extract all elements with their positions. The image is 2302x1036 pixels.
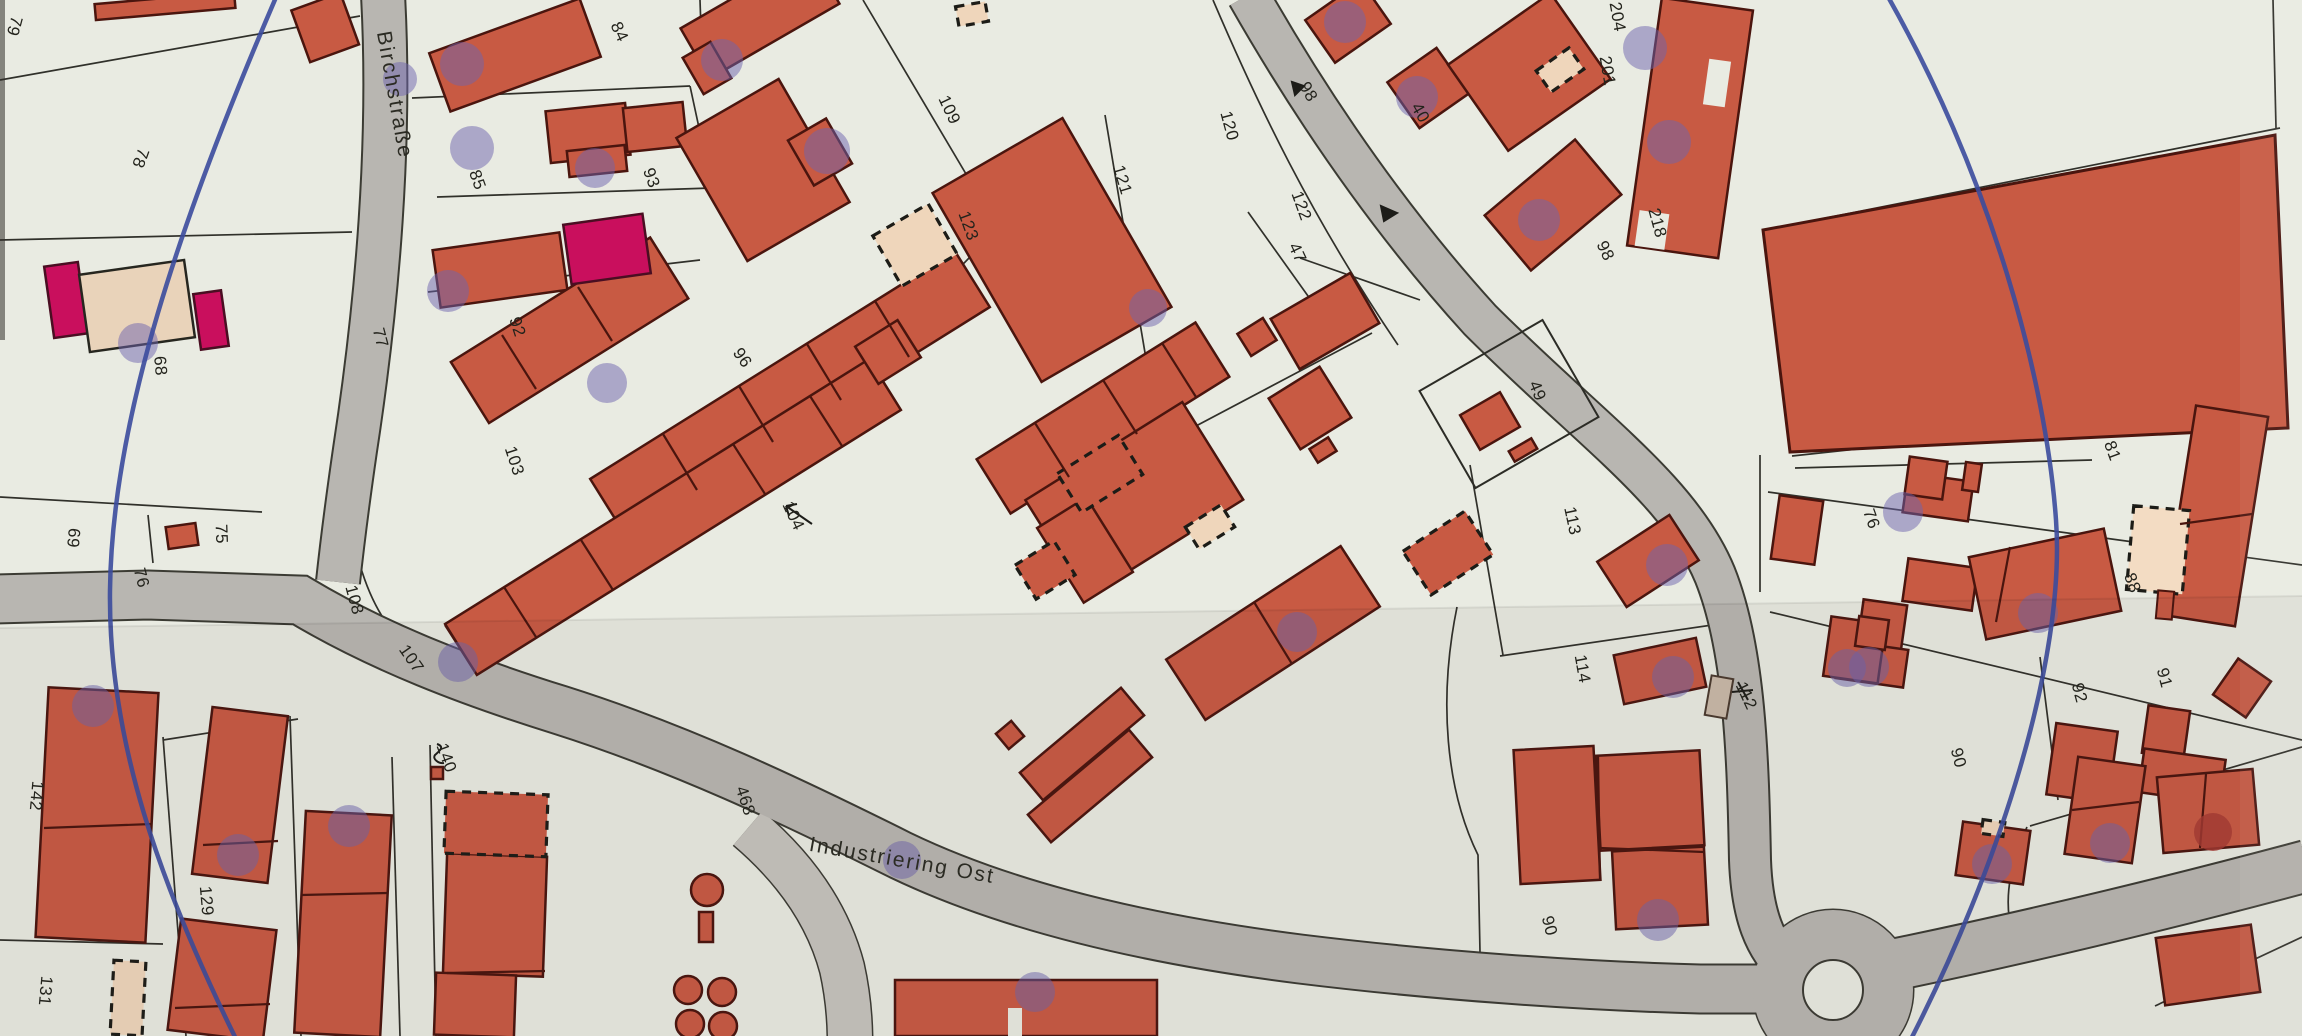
parcel-label-131: 131 bbox=[34, 975, 57, 1007]
building bbox=[1448, 0, 1611, 151]
marker-dot bbox=[1647, 120, 1691, 164]
building bbox=[1905, 457, 1948, 500]
fold-shadow bbox=[0, 596, 2302, 1036]
building bbox=[95, 0, 236, 20]
building bbox=[166, 523, 199, 549]
parcel-label-142: 142 bbox=[25, 780, 48, 812]
road-birchstrasse bbox=[338, 0, 385, 582]
marker-dot bbox=[1883, 492, 1923, 532]
marker-dot bbox=[1324, 1, 1366, 43]
marker-dot bbox=[804, 128, 850, 174]
marker-dot bbox=[1518, 199, 1560, 241]
scan-edge bbox=[0, 0, 5, 340]
marker-dot bbox=[1129, 289, 1167, 327]
marker-dot bbox=[1646, 544, 1688, 586]
map-scan: 79 78 84 85 93 92 77 68 109 123 121 120 … bbox=[0, 0, 2302, 1036]
marker-dot bbox=[427, 270, 469, 312]
building bbox=[1460, 392, 1520, 450]
building bbox=[1271, 273, 1380, 369]
marker-dot bbox=[701, 39, 743, 81]
building bbox=[955, 2, 988, 27]
building bbox=[1509, 438, 1538, 461]
building bbox=[563, 214, 651, 285]
building bbox=[1237, 318, 1276, 356]
parcel-label-129: 129 bbox=[195, 885, 218, 917]
building bbox=[933, 118, 1172, 382]
scan-edge-right bbox=[2240, 0, 2302, 1036]
map-canvas bbox=[0, 0, 2302, 1036]
marker-dot bbox=[575, 148, 615, 188]
building bbox=[1771, 495, 1823, 565]
parcel-label-75: 75 bbox=[211, 524, 232, 545]
building bbox=[1962, 462, 1982, 492]
building bbox=[1269, 367, 1352, 450]
building bbox=[1763, 135, 2288, 452]
parcel-label-68: 68 bbox=[149, 355, 171, 377]
building bbox=[193, 290, 229, 349]
marker-dot bbox=[1623, 26, 1667, 70]
building bbox=[291, 0, 359, 62]
marker-dot bbox=[440, 42, 484, 86]
building bbox=[623, 102, 687, 152]
marker-dot bbox=[587, 363, 627, 403]
parcel-label-69: 69 bbox=[62, 527, 84, 549]
marker-dot bbox=[450, 126, 494, 170]
